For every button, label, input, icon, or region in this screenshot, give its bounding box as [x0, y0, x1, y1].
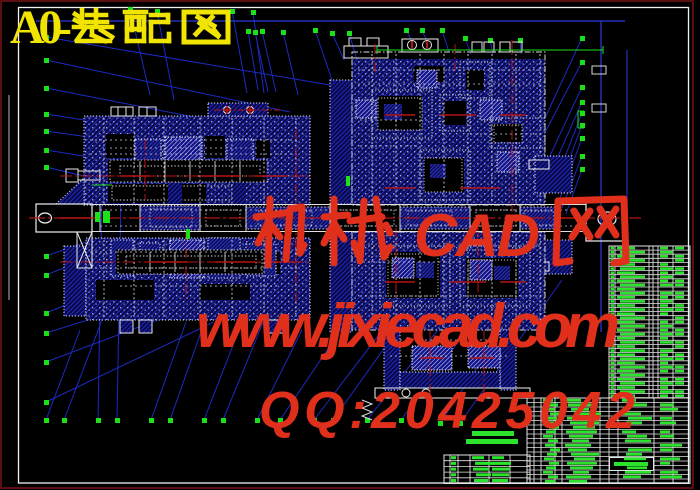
svg-text:QQ:20425042: QQ:20425042: [259, 382, 635, 440]
svg-text:CAD: CAD: [414, 202, 540, 269]
svg-text:A0-: A0-: [10, 1, 72, 54]
svg-text:www.jixiecad.com: www.jixiecad.com: [196, 292, 620, 361]
